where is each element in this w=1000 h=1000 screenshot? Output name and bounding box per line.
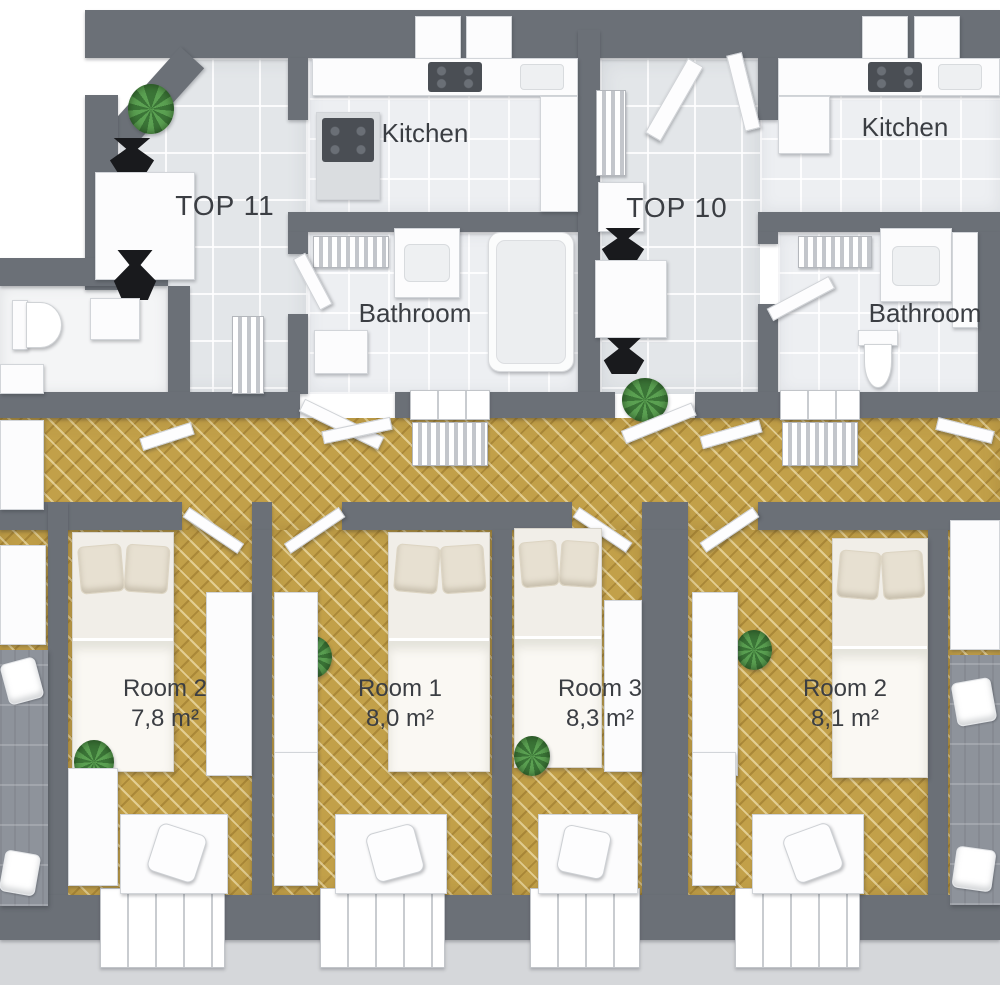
corridor-radiator-2	[782, 422, 858, 466]
radiator	[232, 316, 264, 394]
room-name: Room 2	[760, 674, 930, 704]
kitchen-counter-side	[778, 96, 830, 154]
room-window-3	[530, 888, 640, 968]
corridor-window-1	[410, 390, 490, 420]
radiator	[596, 90, 626, 176]
low-cabinet	[68, 768, 118, 886]
corridor-radiator-1	[412, 422, 488, 466]
plant	[128, 84, 174, 134]
floor-plan: TOP 11 Kitchen Bathroom TOP 10 Kitchen B…	[0, 0, 1000, 1000]
headboard	[0, 545, 46, 645]
plant	[514, 736, 550, 776]
pillow	[123, 544, 170, 595]
wardrobe	[692, 592, 738, 776]
hall-table	[95, 172, 195, 280]
room-area: 8,0 m²	[315, 704, 485, 734]
corridor-window-2	[780, 390, 860, 420]
wall-room-left	[48, 502, 68, 895]
sink-basin	[404, 244, 450, 282]
sideboard	[90, 298, 140, 340]
wall-rooms-top-3	[342, 502, 572, 530]
towel-radiator	[313, 236, 389, 268]
wall-stub-kitchen10	[758, 58, 778, 120]
room-name: Room 1	[315, 674, 485, 704]
room-window-4	[735, 888, 860, 968]
wall-room-divider-2	[492, 530, 512, 895]
kitchen-sink	[938, 64, 982, 90]
towel-radiator	[798, 236, 872, 268]
wall-wc-right	[168, 286, 190, 394]
wall-stub-kitchen11	[288, 58, 308, 120]
room-area: 7,8 m²	[80, 704, 250, 734]
kitchen-counter-side	[540, 96, 578, 212]
wall-rooms-top-2	[252, 502, 272, 530]
pillow	[439, 544, 486, 595]
low-cabinet	[274, 752, 318, 886]
wall-kitchen-bath10	[758, 212, 1000, 232]
bathtub-basin	[496, 240, 566, 364]
kitchen-sink	[520, 64, 564, 90]
desk-chair	[556, 824, 613, 881]
pillow	[880, 550, 925, 601]
room-label-1: Room 2 7,8 m²	[80, 674, 250, 734]
room-name: Room 3	[515, 674, 685, 704]
corridor-bench	[0, 420, 44, 510]
hall-table	[595, 260, 667, 338]
cooktop	[868, 62, 922, 92]
wall-rooms-top-4	[642, 502, 688, 530]
kitchen-label-top10: Kitchen	[830, 112, 980, 143]
gray-bed	[950, 655, 1000, 905]
room-area: 8,3 m²	[515, 704, 685, 734]
room-window-1	[100, 888, 225, 968]
wall-room-divider-4	[928, 530, 948, 895]
sofa-pillow	[0, 656, 45, 706]
wall-corridor-top-1	[0, 392, 300, 418]
pillow	[518, 539, 560, 588]
wall-hall-bath11-b	[288, 314, 308, 394]
wardrobe	[274, 592, 318, 776]
low-cabinet	[692, 752, 736, 886]
bed	[72, 532, 174, 772]
room-label-2: Room 1 8,0 m²	[315, 674, 485, 734]
cooktop	[428, 62, 482, 92]
apartment-label-top10: TOP 10	[592, 192, 762, 224]
apartment-label-top11: TOP 11	[140, 190, 310, 222]
bed	[388, 532, 490, 772]
headboard	[950, 520, 1000, 650]
pillow	[393, 543, 441, 595]
bed	[832, 538, 928, 778]
bed-pillow	[950, 677, 997, 727]
sink-basin	[892, 246, 940, 286]
room-area: 8,1 m²	[760, 704, 930, 734]
room-window-2	[320, 888, 445, 968]
room-label-3: Room 3 8,3 m²	[515, 674, 685, 734]
pillow	[836, 549, 882, 600]
sofa	[0, 650, 48, 906]
bath-mat	[314, 330, 368, 374]
wc-shelf	[0, 364, 44, 394]
bathtub	[488, 232, 574, 372]
kitchen-label-top11: Kitchen	[350, 118, 500, 149]
wall-room-divider-1	[252, 530, 272, 895]
wall-hall-bath11-a	[288, 232, 308, 254]
pillow	[77, 543, 125, 595]
bathroom-label-top10: Bathroom	[840, 298, 1000, 329]
bed-pillow	[951, 845, 996, 892]
sofa-pillow	[0, 849, 41, 897]
plant	[736, 630, 772, 670]
wall-hall-bath10-a	[758, 232, 778, 244]
room-label-4: Room 2 8,1 m²	[760, 674, 930, 734]
pillow	[558, 540, 599, 589]
room-name: Room 2	[80, 674, 250, 704]
bathroom-label-top11: Bathroom	[330, 298, 500, 329]
